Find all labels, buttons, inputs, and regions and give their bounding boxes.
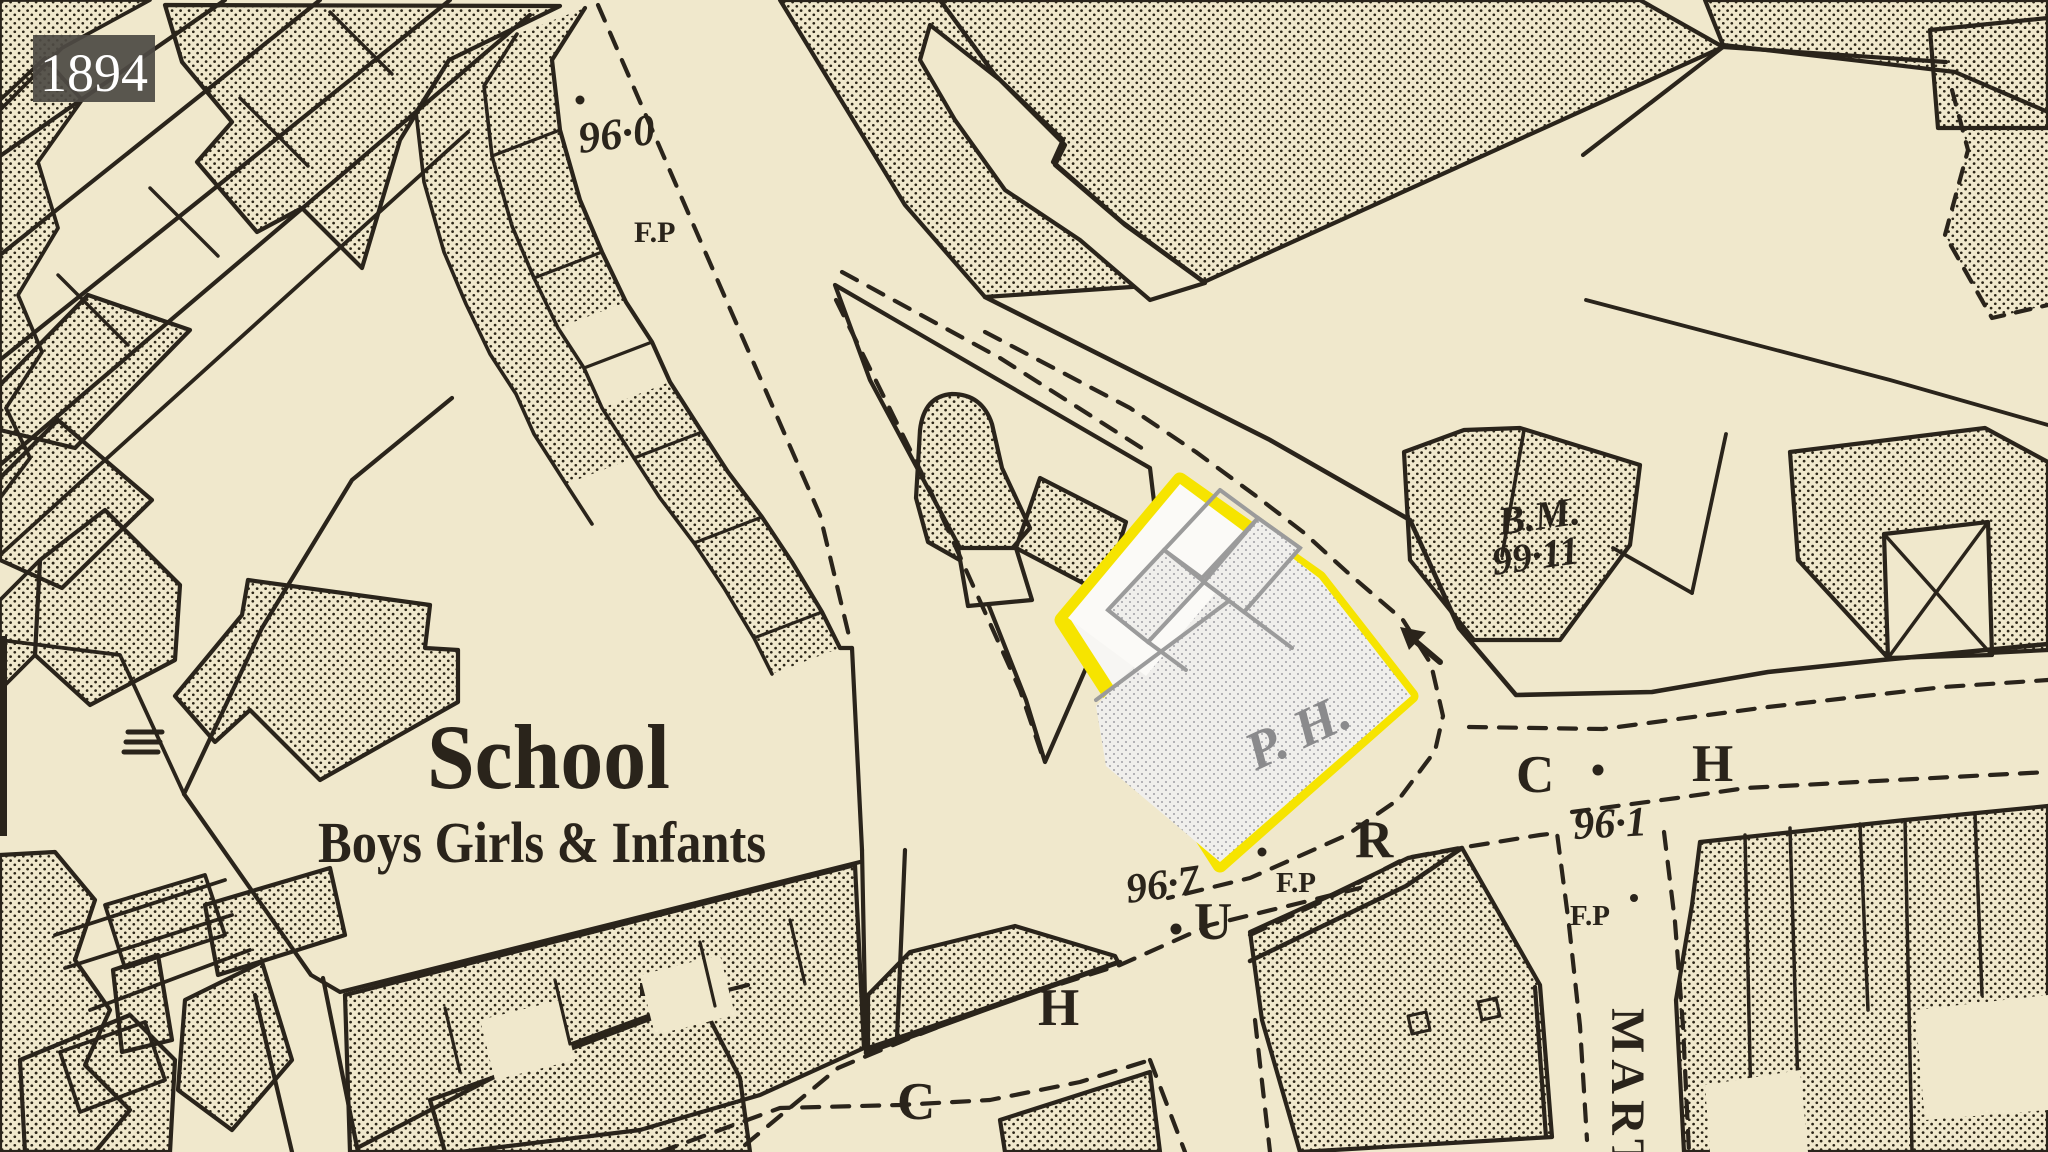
- svg-text:F.P: F.P: [634, 216, 675, 249]
- svg-text:F.P: F.P: [1276, 867, 1316, 899]
- svg-text:C: C: [897, 1073, 935, 1131]
- svg-text:MART: MART: [1601, 1008, 1654, 1152]
- svg-text:School: School: [427, 706, 670, 808]
- svg-text:C: C: [1516, 746, 1554, 804]
- svg-text:96·0: 96·0: [575, 105, 657, 163]
- svg-text:H: H: [1038, 979, 1079, 1037]
- svg-text:Boys Girls & Infants: Boys Girls & Infants: [318, 810, 766, 875]
- svg-text:1894: 1894: [40, 43, 148, 103]
- svg-text:R: R: [1355, 811, 1394, 869]
- svg-text:H: H: [1692, 735, 1733, 793]
- svg-text:96·1: 96·1: [1572, 799, 1648, 849]
- svg-text:F.P: F.P: [1570, 900, 1610, 932]
